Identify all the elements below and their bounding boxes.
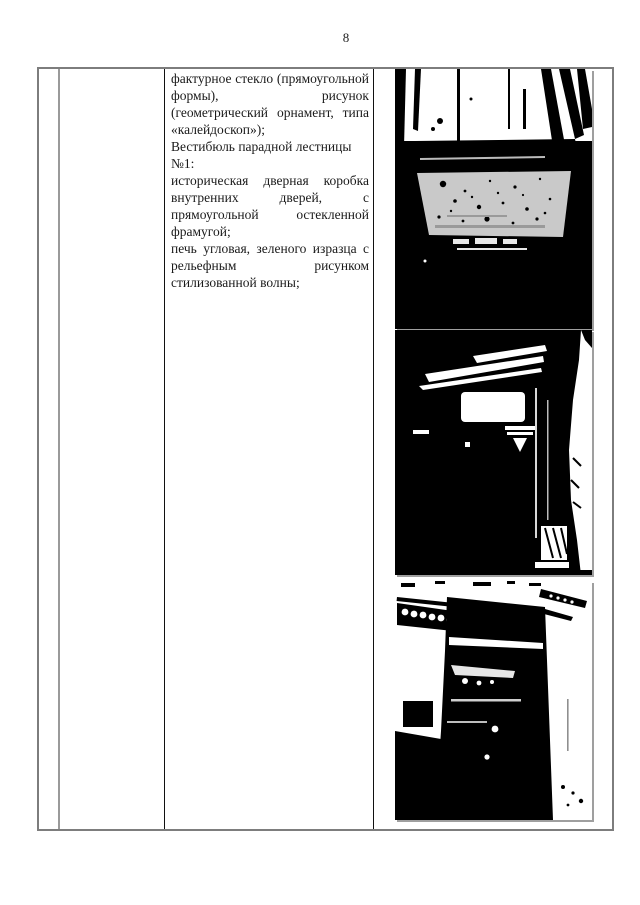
document-page: 8 фактурное стекло (прямоугольной формы)… [0, 0, 640, 905]
description-door-frame: историческая дверная коробка внутренних … [171, 172, 369, 240]
table-column-photos [374, 69, 612, 829]
content-table: фактурное стекло (прямоугольной формы), … [37, 67, 614, 831]
description-textured-glass: фактурное стекло (прямоугольной формы), … [171, 70, 369, 138]
description-corner-stove: печь угловая, зеленого изразца с рельефн… [171, 240, 369, 291]
corner-stove-photo [395, 581, 592, 820]
table-column-description: фактурное стекло (прямоугольной формы), … [165, 69, 374, 829]
textured-glass-window-photo [395, 69, 592, 329]
vestibule-door-frame-photo [395, 330, 592, 575]
description-vestibule-title: Вестибюль парадной лестницы №1: [171, 138, 369, 172]
table-column-label [60, 69, 165, 829]
page-number: 8 [0, 30, 640, 46]
table-column-index [39, 69, 60, 829]
